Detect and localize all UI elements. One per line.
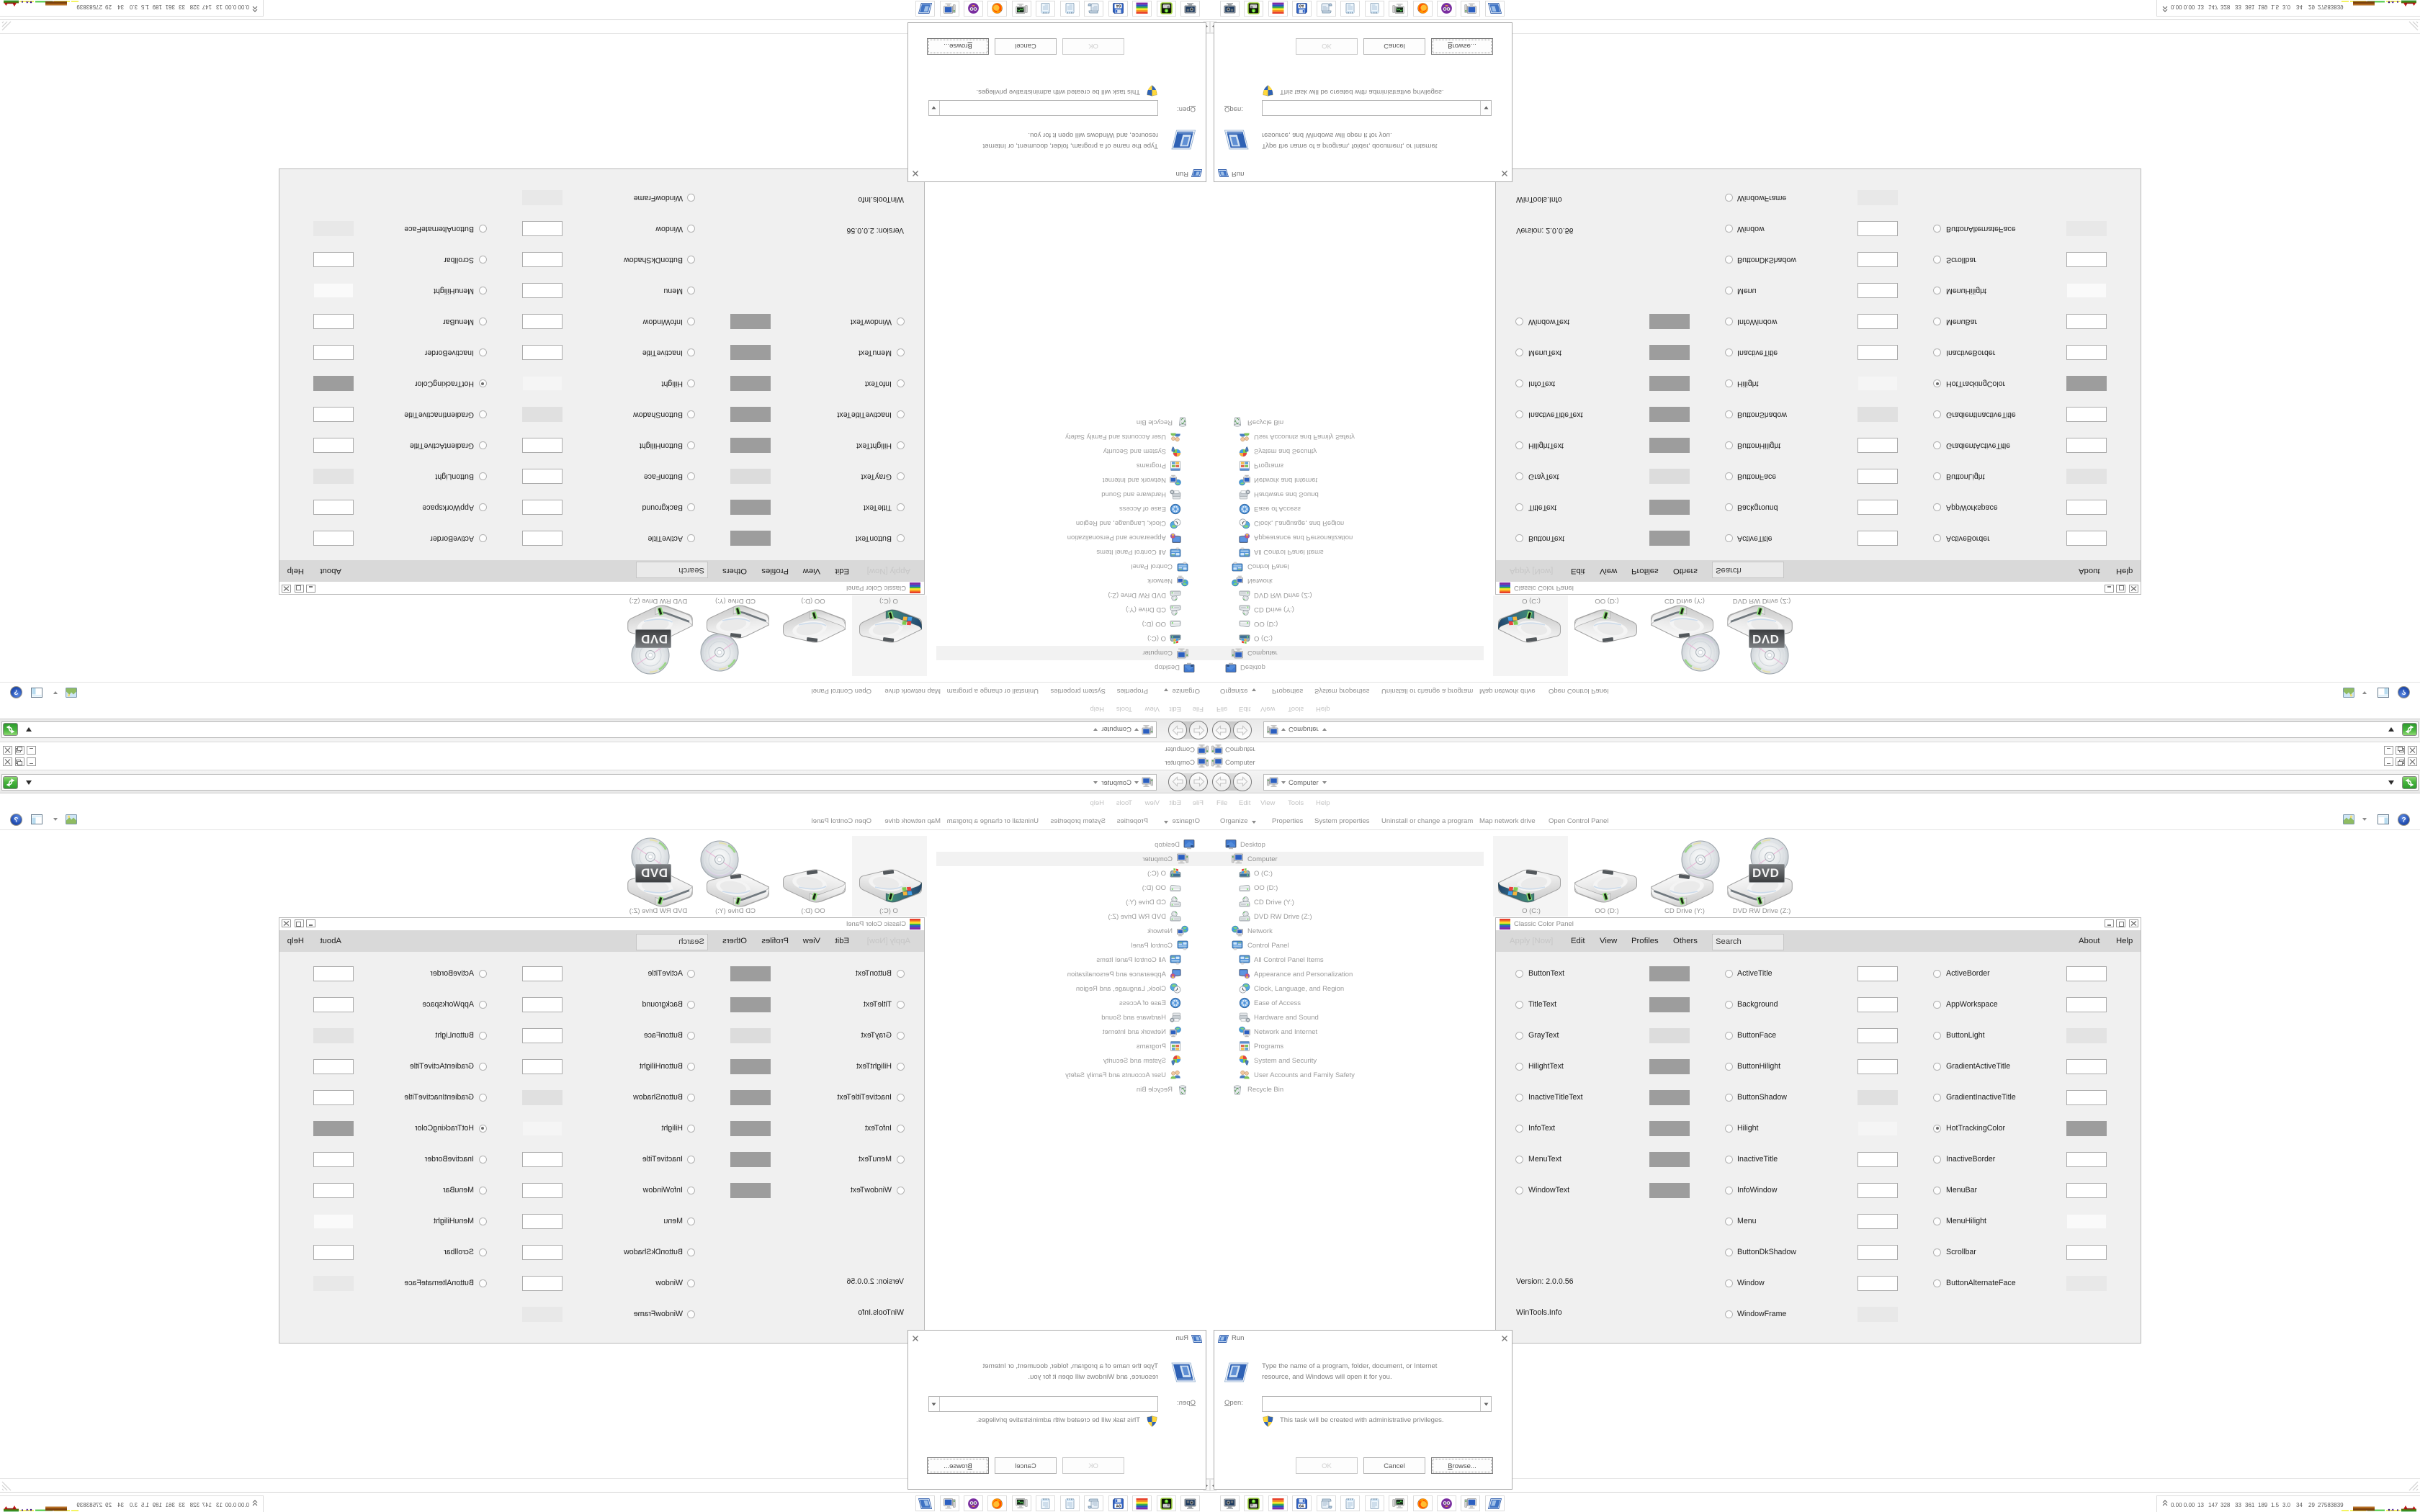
svg-text:64: 64: [1299, 1505, 1304, 1509]
svg-text:64: 64: [1116, 1505, 1121, 1509]
svg-text:64: 64: [1299, 3, 1304, 7]
svg-text:?: ?: [14, 688, 18, 696]
svg-text:?: ?: [2401, 688, 2406, 696]
svg-text:?: ?: [14, 816, 18, 824]
svg-text:?: ?: [2401, 816, 2406, 824]
svg-text:64: 64: [1116, 3, 1121, 7]
